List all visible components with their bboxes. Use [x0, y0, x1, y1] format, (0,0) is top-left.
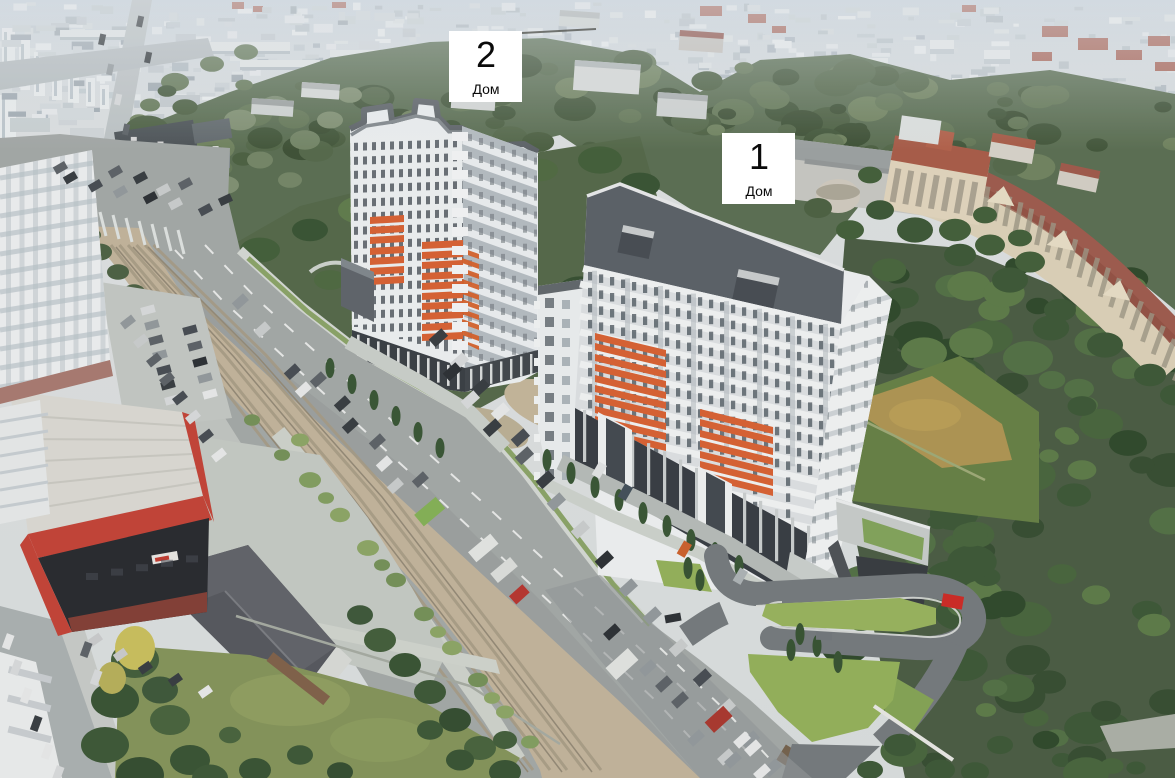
svg-text:1: 1	[749, 136, 769, 177]
svg-text:2: 2	[476, 34, 496, 75]
svg-text:Дом: Дом	[472, 81, 499, 97]
svg-text:Дом: Дом	[745, 183, 772, 199]
